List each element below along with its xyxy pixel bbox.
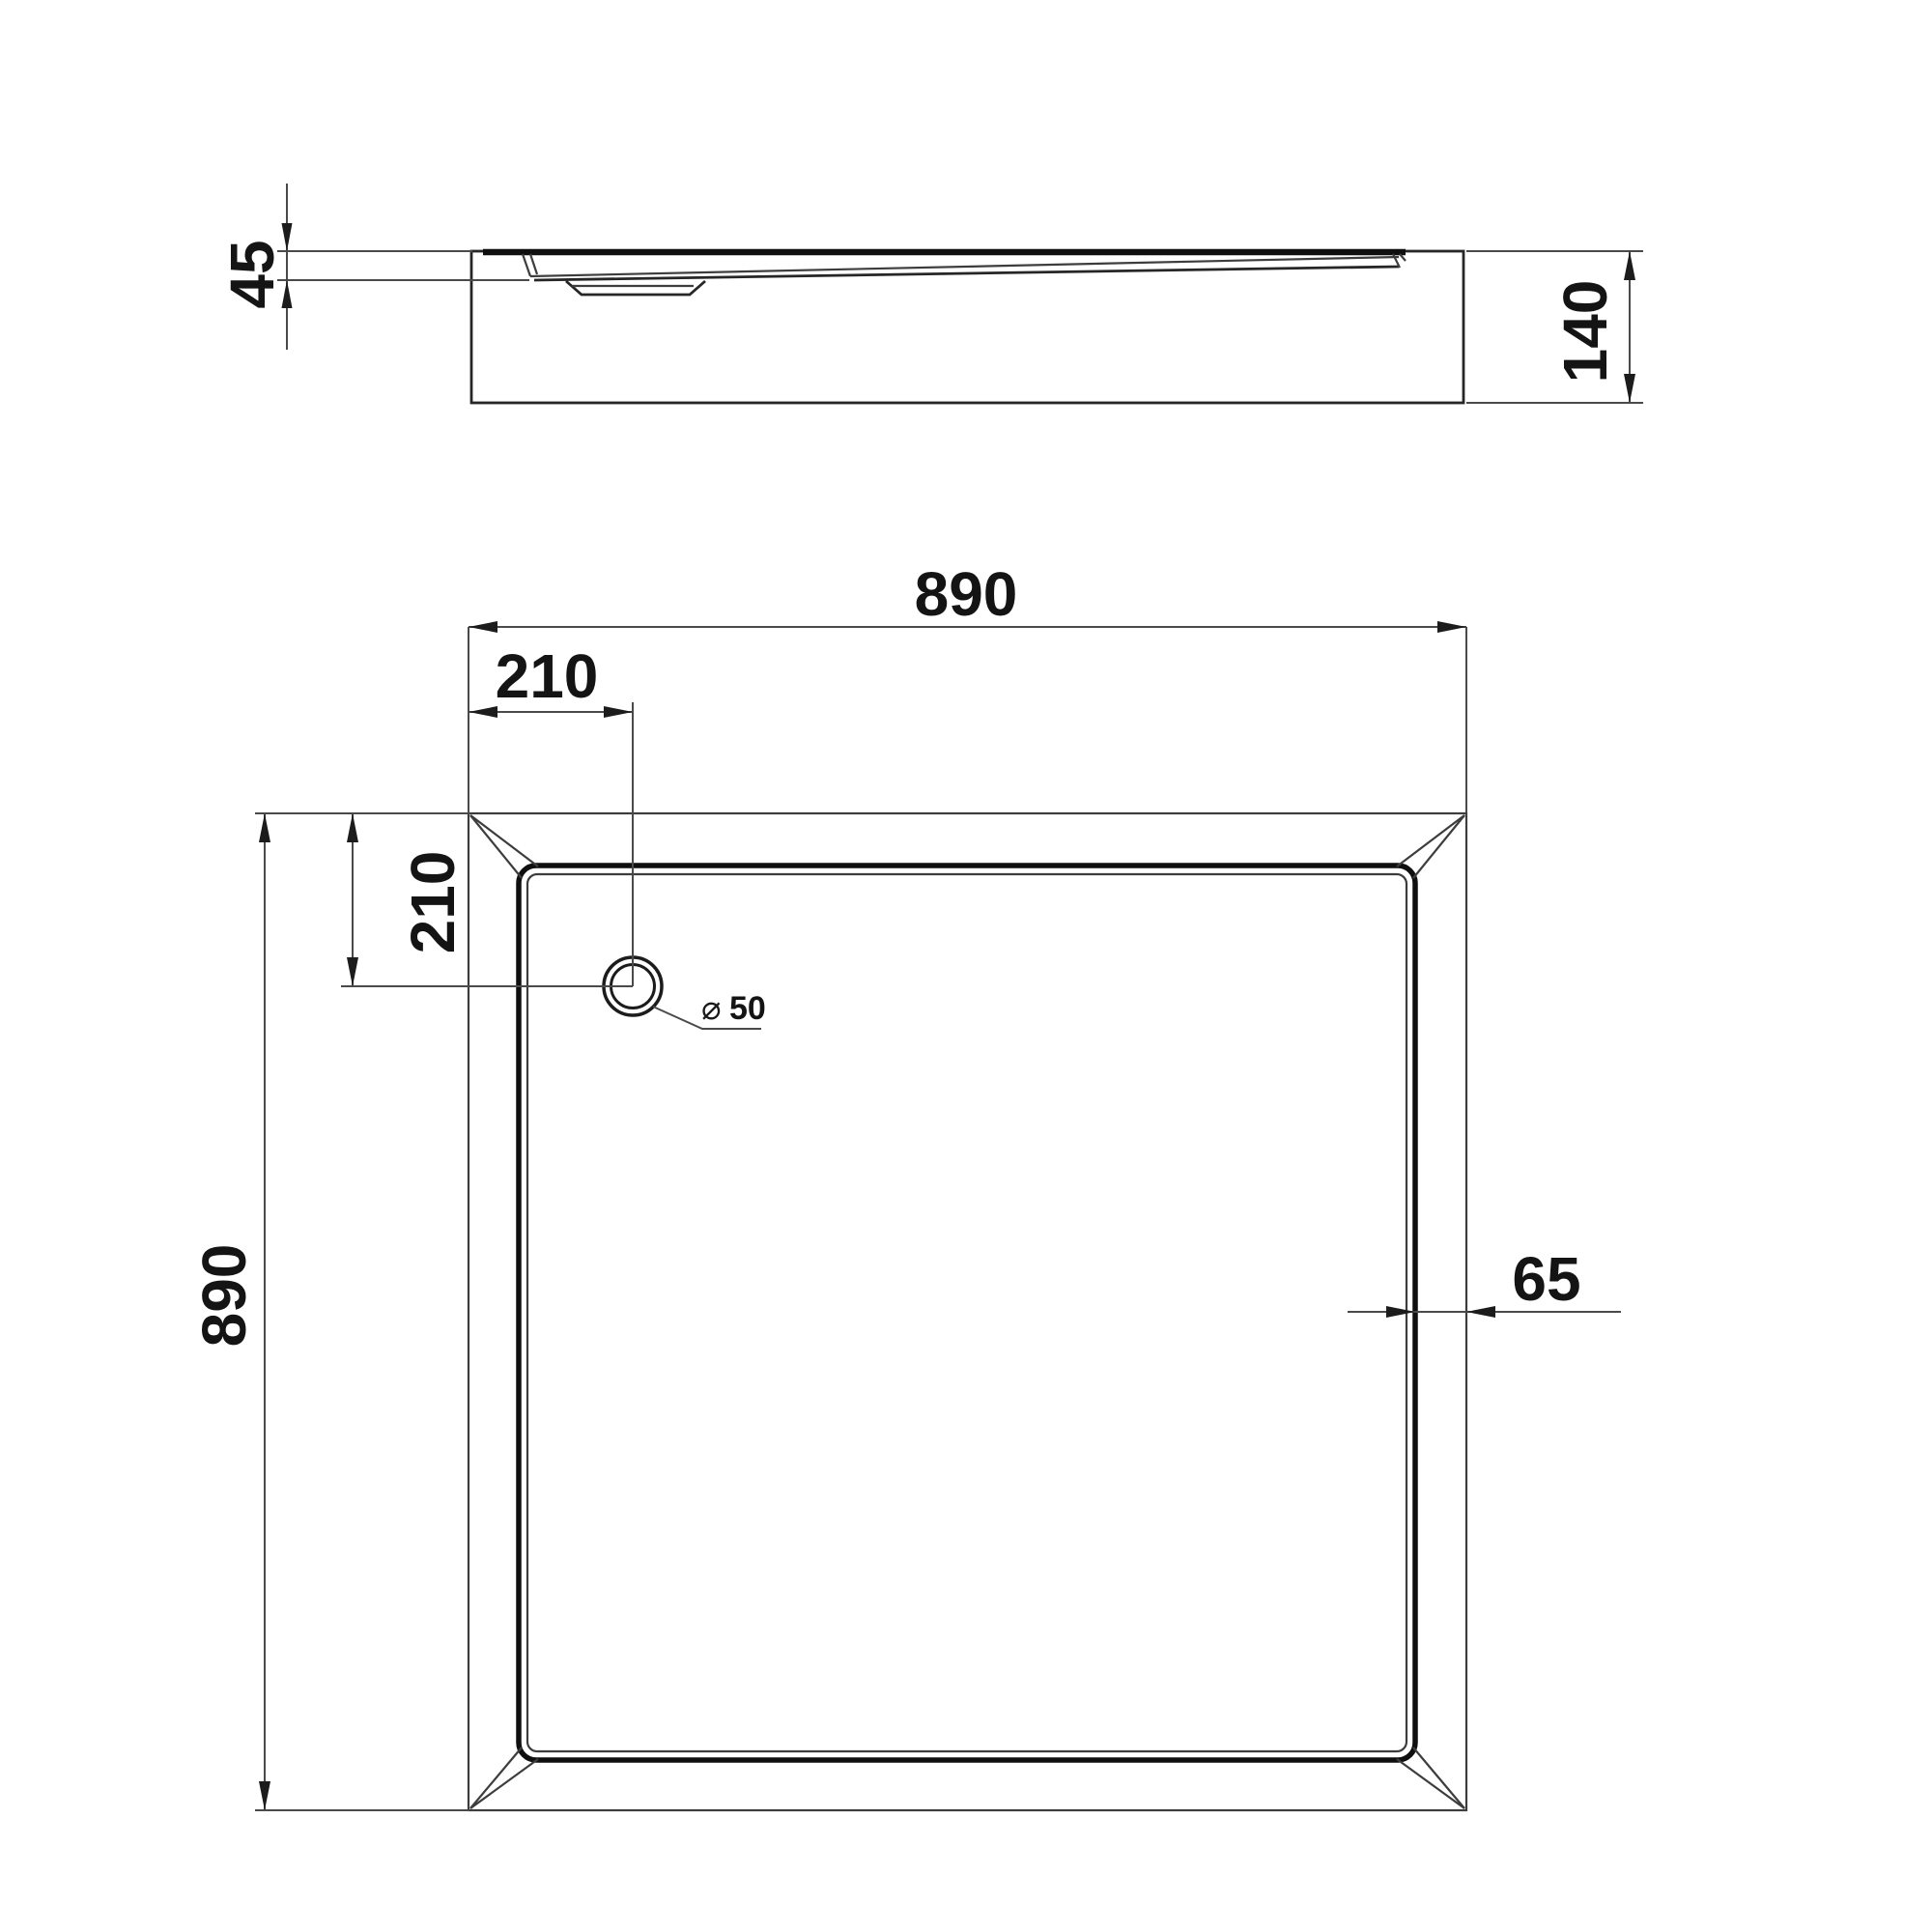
arrow-down-icon bbox=[1624, 374, 1635, 403]
bevel-top-right-a bbox=[1397, 815, 1464, 867]
bevel-top-right-b bbox=[1413, 815, 1464, 878]
dim-label-depth: 45 bbox=[217, 240, 287, 308]
plan-basin-inner-edge bbox=[527, 874, 1406, 1751]
arrow-left-icon bbox=[1466, 1306, 1495, 1318]
dim-width-890: 890 bbox=[469, 559, 1466, 812]
dim-label-drain-diameter: 50 bbox=[729, 990, 766, 1027]
dim-label-tray-height: 140 bbox=[1550, 280, 1620, 384]
side-view: 45 140 bbox=[217, 184, 1643, 403]
side-view-basin-left-wall-outer bbox=[523, 254, 530, 276]
dim-height-890: 890 bbox=[189, 813, 469, 1810]
arrow-right-icon bbox=[1437, 621, 1466, 633]
drain-diameter-symbol: ⌀ bbox=[701, 989, 721, 1028]
bevel-top-left-a bbox=[470, 815, 538, 867]
technical-drawing-canvas: 45 140 bbox=[0, 0, 1932, 1932]
dim-label-width: 890 bbox=[915, 559, 1018, 629]
arrow-left-icon bbox=[469, 706, 497, 718]
dim-label-height: 890 bbox=[189, 1244, 259, 1348]
arrow-up-icon bbox=[347, 813, 358, 842]
arrow-right-icon bbox=[1386, 1306, 1415, 1318]
shower-tray-drawing: 45 140 bbox=[0, 0, 1932, 1932]
dim-height-140: 140 bbox=[1466, 251, 1643, 403]
arrow-left-icon bbox=[469, 621, 497, 633]
side-view-basin-left-wall-inner bbox=[530, 254, 537, 274]
bevel-bottom-right-a bbox=[1397, 1759, 1464, 1808]
arrow-up-icon bbox=[1624, 251, 1635, 280]
dim-label-drain-offset-left: 210 bbox=[398, 851, 468, 954]
arrow-right-icon bbox=[604, 706, 633, 718]
corner-bevels bbox=[470, 815, 1464, 1808]
arrow-up-icon bbox=[259, 813, 270, 842]
dim-label-drain-offset-top: 210 bbox=[496, 641, 599, 711]
plan-basin-edge bbox=[519, 866, 1415, 1760]
side-view-drain-recess bbox=[566, 281, 705, 295]
bevel-bottom-left-a bbox=[470, 1759, 538, 1808]
arrow-down-icon bbox=[259, 1781, 270, 1810]
dim-drain-offset-left-210: 210 bbox=[341, 813, 633, 986]
arrow-down-icon bbox=[347, 957, 358, 986]
drain: ⌀ 50 bbox=[604, 957, 766, 1029]
dim-depth-45: 45 bbox=[217, 184, 529, 350]
dim-rim-65: 65 bbox=[1348, 1244, 1621, 1318]
dim-label-rim-width: 65 bbox=[1512, 1244, 1580, 1314]
bevel-top-left-b bbox=[470, 815, 522, 878]
plan-view: ⌀ 50 890 210 890 bbox=[189, 559, 1621, 1810]
